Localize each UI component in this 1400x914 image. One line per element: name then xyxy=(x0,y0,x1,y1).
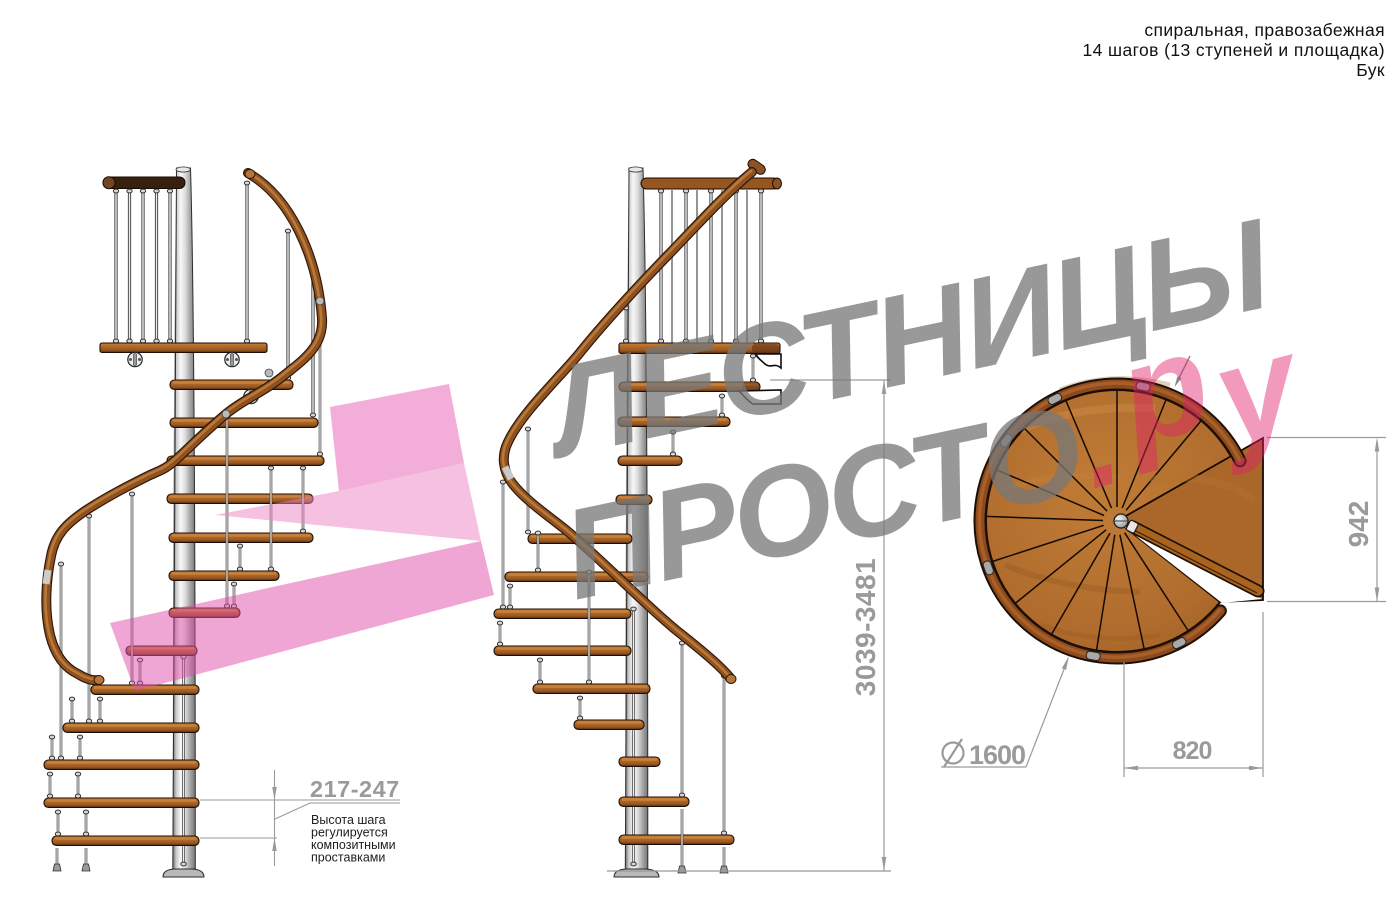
svg-text:1600: 1600 xyxy=(969,740,1025,770)
svg-text:3039-3481: 3039-3481 xyxy=(850,558,881,696)
svg-text:14 шагов (13 ступеней и площад: 14 шагов (13 ступеней и площадка) xyxy=(1083,40,1386,60)
svg-text:проставками: проставками xyxy=(311,851,385,865)
svg-text:спиральная, правозабежная: спиральная, правозабежная xyxy=(1144,20,1385,40)
svg-text:217-247: 217-247 xyxy=(310,776,400,802)
svg-text:Бук: Бук xyxy=(1356,60,1385,80)
svg-text:820: 820 xyxy=(1173,737,1212,765)
svg-text:942: 942 xyxy=(1343,501,1374,548)
